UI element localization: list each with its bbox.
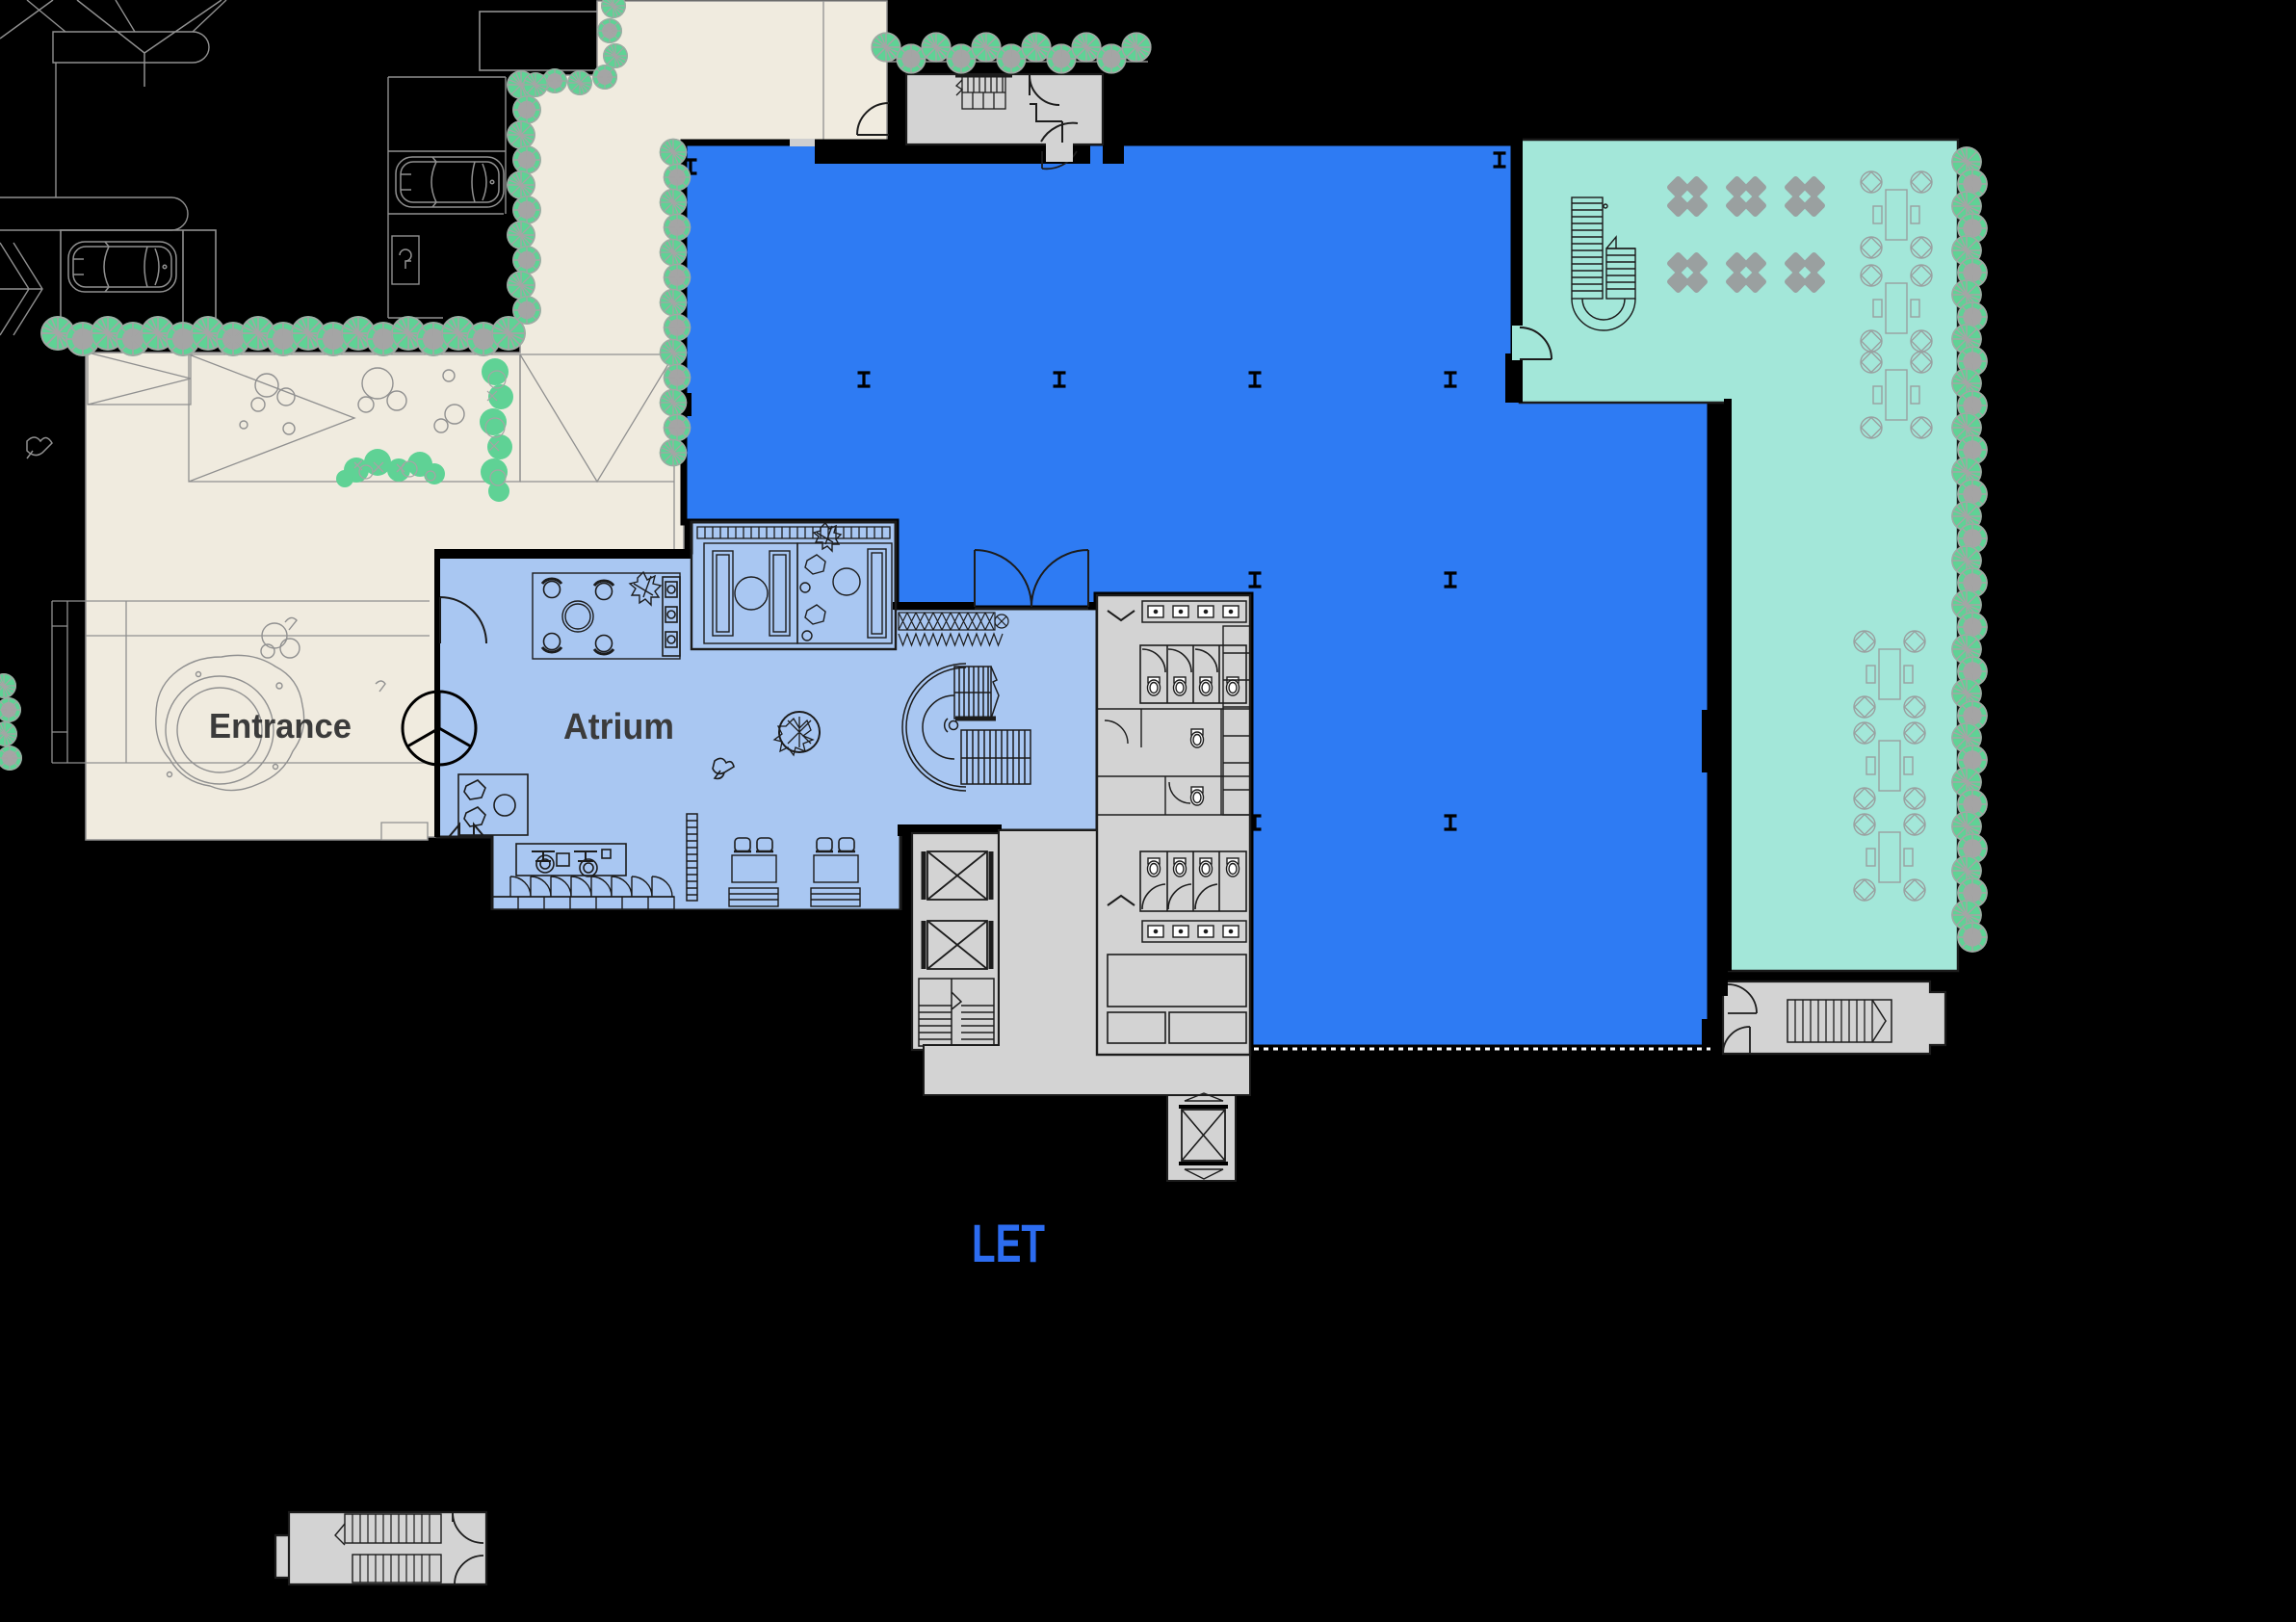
svg-text:LET: LET xyxy=(972,1213,1045,1273)
svg-text:Entrance: Entrance xyxy=(209,706,352,746)
svg-text:Atrium: Atrium xyxy=(563,707,674,747)
